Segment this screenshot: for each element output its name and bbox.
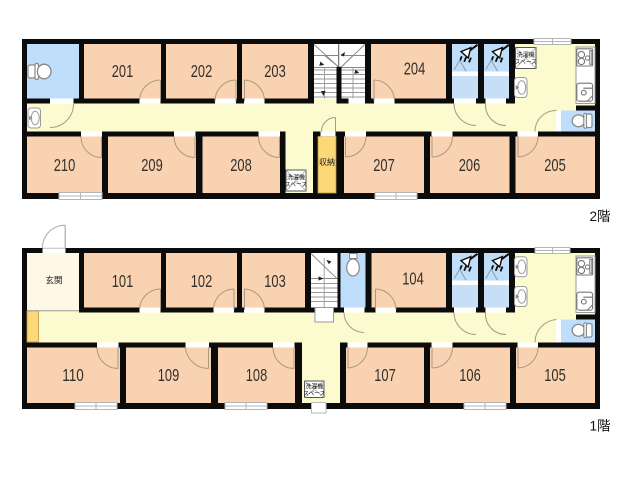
svg-text:208: 208 <box>230 155 252 175</box>
svg-text:205: 205 <box>544 155 566 175</box>
svg-text:210: 210 <box>54 155 76 175</box>
svg-text:102: 102 <box>191 271 213 291</box>
svg-text:スペース: スペース <box>303 390 325 397</box>
svg-text:109: 109 <box>158 365 180 385</box>
svg-text:204: 204 <box>404 59 426 79</box>
svg-text:206: 206 <box>459 155 481 175</box>
svg-text:201: 201 <box>112 61 134 81</box>
svg-text:108: 108 <box>246 365 268 385</box>
svg-text:1階: 1階 <box>589 419 610 434</box>
svg-text:110: 110 <box>62 365 84 385</box>
svg-text:106: 106 <box>459 365 481 385</box>
svg-text:202: 202 <box>191 61 213 81</box>
svg-text:105: 105 <box>544 365 566 385</box>
svg-text:203: 203 <box>264 61 286 81</box>
svg-text:2階: 2階 <box>589 209 610 224</box>
svg-text:107: 107 <box>374 365 396 385</box>
svg-text:玄関: 玄関 <box>46 275 63 286</box>
svg-text:209: 209 <box>141 155 163 175</box>
svg-text:101: 101 <box>112 271 134 291</box>
svg-text:スペース: スペース <box>285 182 307 189</box>
svg-text:207: 207 <box>373 155 395 175</box>
svg-text:104: 104 <box>402 269 424 289</box>
svg-text:洗濯機: 洗濯機 <box>517 51 535 59</box>
svg-text:スペース: スペース <box>515 59 537 66</box>
svg-text:103: 103 <box>264 271 286 291</box>
svg-text:収納: 収納 <box>319 157 335 167</box>
svg-text:洗濯機: 洗濯機 <box>305 382 323 390</box>
svg-text:洗濯機: 洗濯機 <box>287 174 305 182</box>
